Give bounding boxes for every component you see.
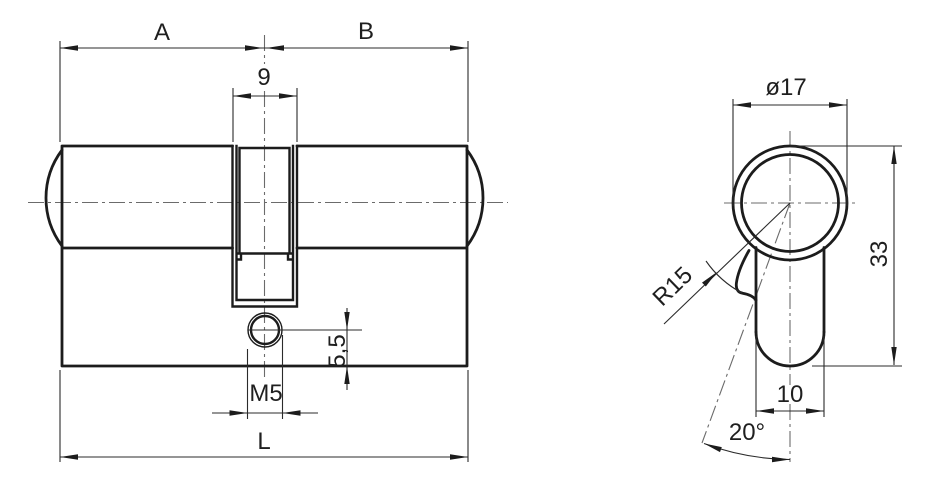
dim-radius-r15: R15 (648, 203, 790, 324)
dim-arrow (806, 408, 824, 413)
dim-arrow (344, 366, 349, 384)
dim-label-m5: M5 (249, 380, 282, 407)
dim-arrow (60, 45, 78, 50)
dim-arrow (283, 410, 301, 415)
dim-arrow (245, 45, 263, 50)
right-dome-end (467, 150, 483, 246)
dim-angle-20: 20° (704, 419, 790, 462)
dim-5-5: 5,5 (248, 308, 362, 390)
dim-label-diameter: ø17 (765, 74, 806, 101)
dim-arrow (829, 102, 847, 107)
dim-arrow (891, 146, 896, 164)
dim-arrow (60, 454, 78, 459)
dim-height-33: 33 (790, 146, 902, 366)
dim-label-9: 9 (257, 64, 270, 91)
dim-arrow (450, 454, 468, 459)
dim-arrow (702, 272, 717, 287)
dim-label-B: B (358, 18, 374, 45)
dim-arrow (450, 45, 468, 50)
dim-label-A: A (154, 19, 170, 46)
dim-arrow (704, 444, 722, 453)
side-view: ø17 33 10 R15 20° (648, 74, 902, 462)
dim-label-radius: R15 (648, 262, 698, 312)
radius-leader-line (664, 203, 790, 324)
dim-arrow (344, 312, 349, 330)
dim-label-angle: 20° (729, 419, 765, 446)
dim-label-width: 10 (777, 381, 804, 408)
drawing-canvas: A B 9 M5 5,5 L (0, 0, 938, 500)
dim-label-5-5: 5,5 (324, 334, 351, 367)
cam-nose-flap (736, 251, 756, 301)
dim-arrow (733, 102, 751, 107)
dim-arrow (279, 93, 297, 98)
dim-label-L: L (257, 428, 270, 455)
cylinder-technical-drawing: A B 9 M5 5,5 L (0, 0, 938, 500)
left-dome-end (46, 150, 62, 246)
dim-label-height: 33 (866, 241, 893, 268)
dim-arrow (230, 410, 248, 415)
dim-arrow (266, 45, 284, 50)
dim-arrow (891, 347, 896, 365)
dim-arrow (233, 93, 251, 98)
dim-arrow (756, 408, 774, 413)
front-view: A B 9 M5 5,5 L (28, 18, 508, 462)
dim-arrow (772, 457, 790, 462)
